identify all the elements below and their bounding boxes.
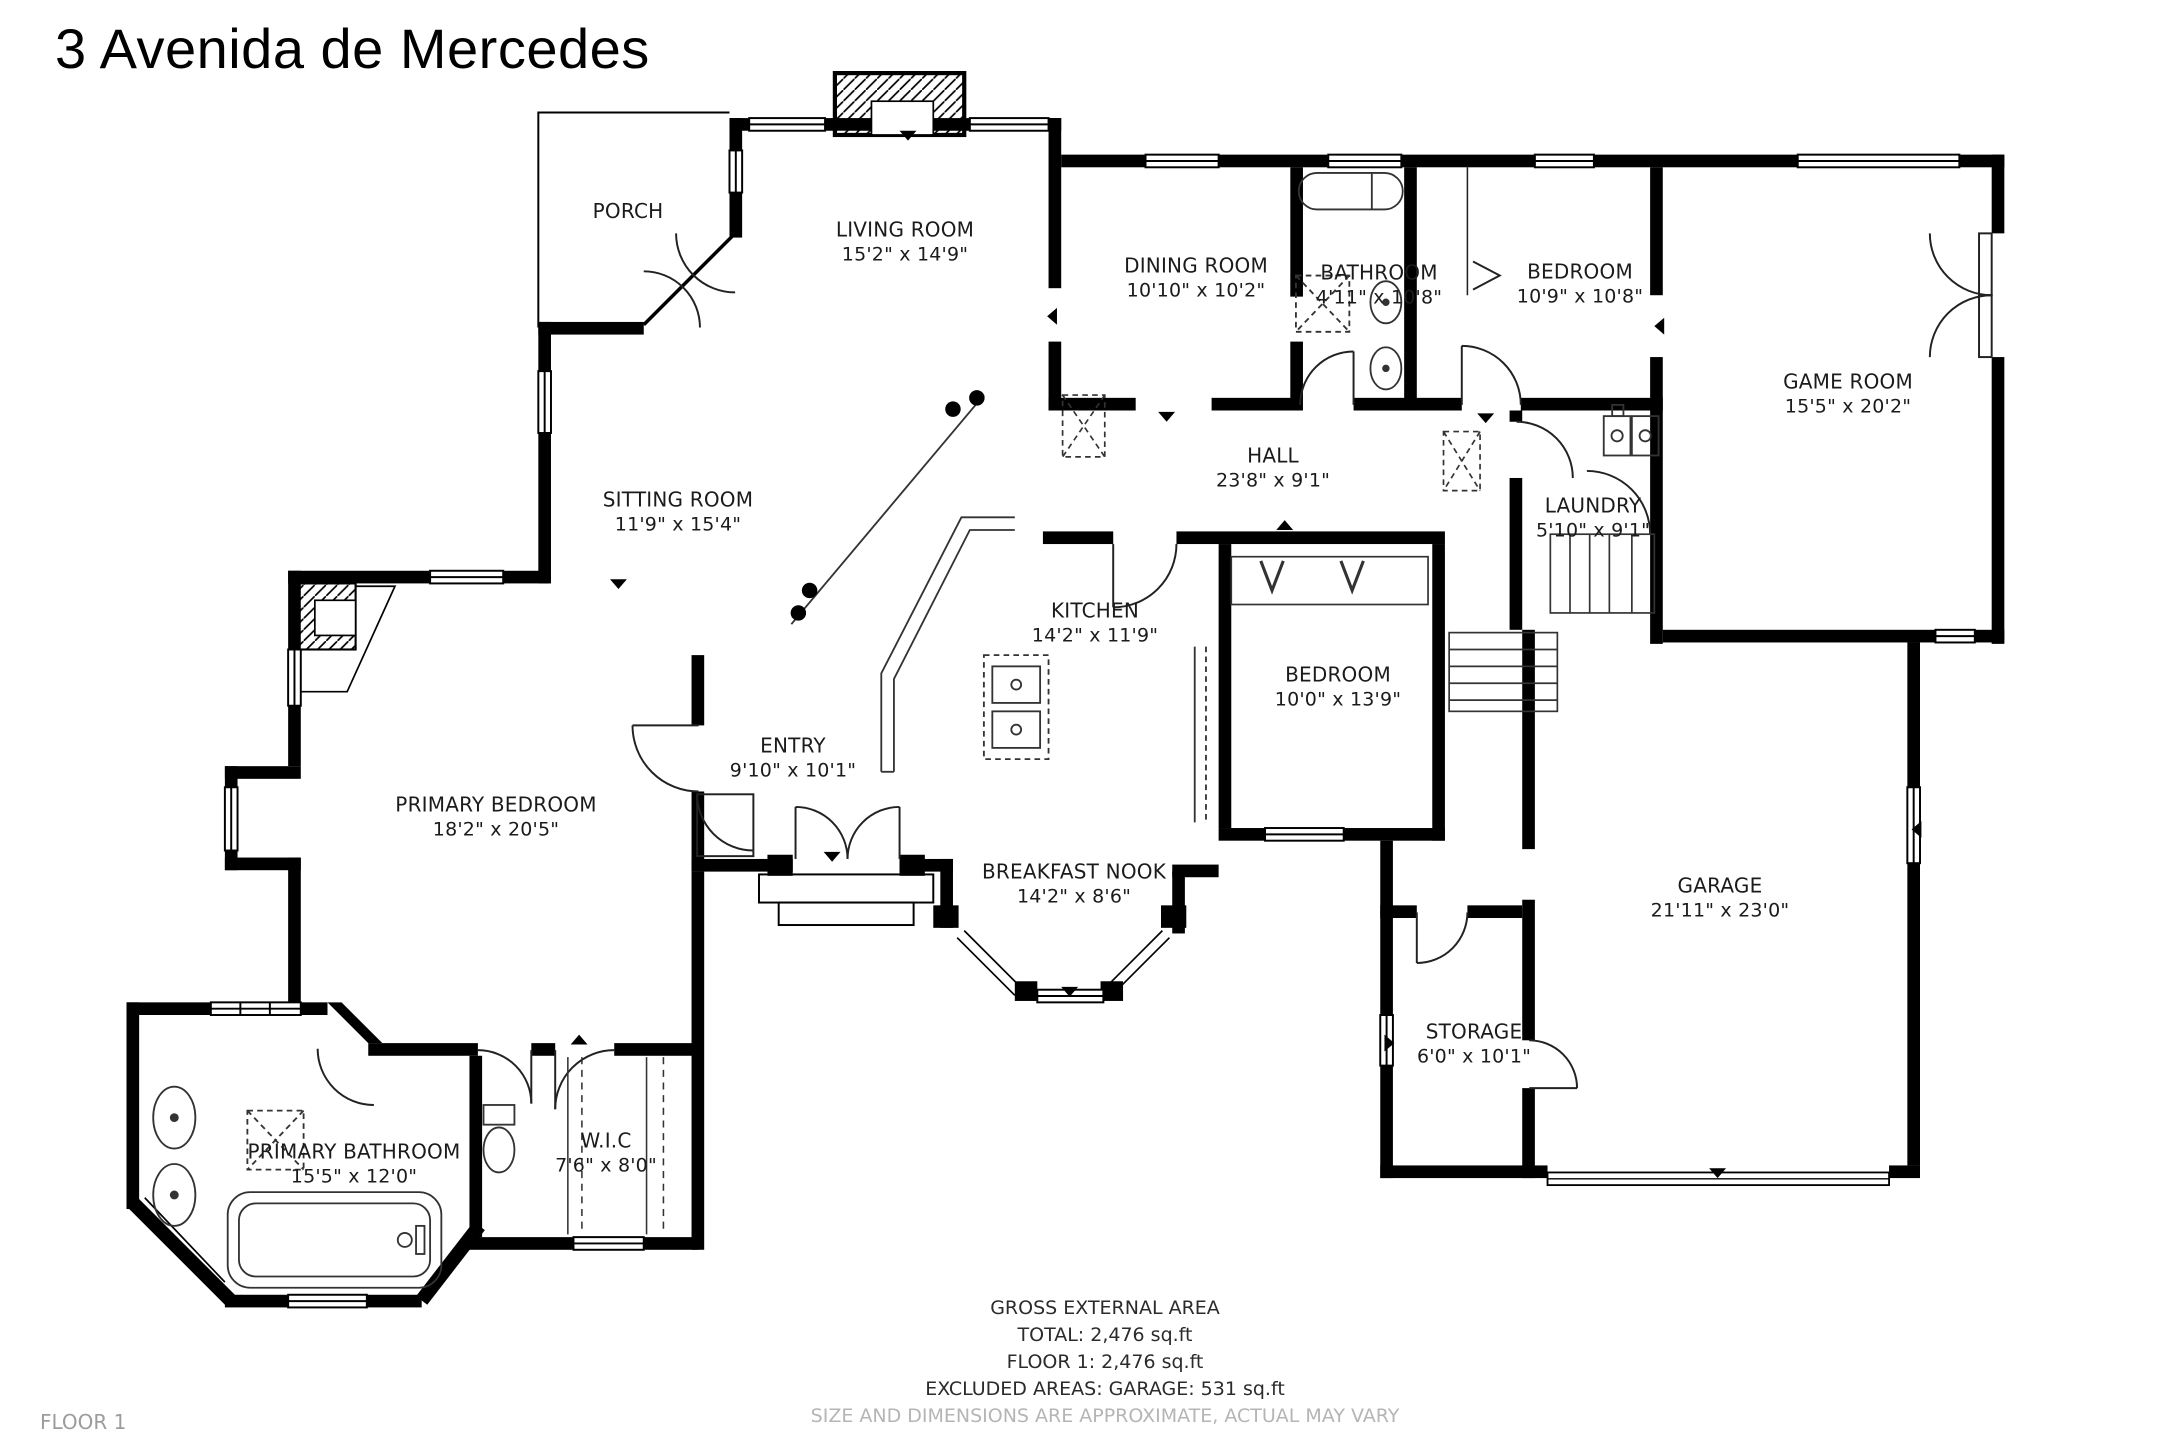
room-dims: 11'9" x 15'4" <box>603 513 753 538</box>
room-label-entry: ENTRY 9'10" x 10'1" <box>730 733 856 784</box>
chimney <box>835 73 964 135</box>
room-dims: 7'6" x 8'0" <box>555 1154 657 1179</box>
room-name: LAUNDRY <box>1536 493 1650 519</box>
room-name: PRIMARY BATHROOM <box>248 1139 461 1165</box>
excluded-areas: EXCLUDED AREAS: GARAGE: 531 sq.ft <box>811 1376 1400 1403</box>
room-label-kitchen: KITCHEN 14'2" x 11'9" <box>1032 598 1158 649</box>
room-label-porch: PORCH <box>593 198 664 224</box>
gross-area-heading: GROSS EXTERNAL AREA <box>811 1295 1400 1322</box>
walls <box>127 118 2005 1307</box>
room-dims: 9'10" x 10'1" <box>730 759 856 784</box>
open-plan-columns <box>791 390 985 624</box>
room-label-bedroom-top: BEDROOM 10'9" x 10'8" <box>1517 259 1643 310</box>
room-label-bedroom-mid: BEDROOM 10'0" x 13'9" <box>1275 662 1401 713</box>
room-dims: 15'5" x 20'2" <box>1783 395 1913 420</box>
room-dims: 15'5" x 12'0" <box>248 1165 461 1190</box>
room-label-storage: STORAGE 6'0" x 10'1" <box>1417 1019 1531 1070</box>
room-name: SITTING ROOM <box>603 487 753 513</box>
room-label-game-room: GAME ROOM 15'5" x 20'2" <box>1783 369 1913 420</box>
floorplan-page: 3 Avenida de Mercedes PORCH LIVING ROOM … <box>0 0 2173 1448</box>
windows <box>138 118 1975 1307</box>
room-name: GAME ROOM <box>1783 369 1913 395</box>
floor-label: FLOOR 1 <box>40 1410 126 1434</box>
room-name: PRIMARY BEDROOM <box>395 792 596 818</box>
room-label-garage: GARAGE 21'11" x 23'0" <box>1651 873 1790 924</box>
room-label-primary-bedroom: PRIMARY BEDROOM 18'2" x 20'5" <box>395 792 596 843</box>
room-dims: 23'8" x 9'1" <box>1216 469 1330 494</box>
room-name: DINING ROOM <box>1124 253 1268 279</box>
room-label-wic: W.I.C 7'6" x 8'0" <box>555 1128 657 1179</box>
disclaimer: SIZE AND DIMENSIONS ARE APPROXIMATE, ACT… <box>811 1403 1400 1430</box>
room-name: BEDROOM <box>1517 259 1643 285</box>
room-dims: 10'10" x 10'2" <box>1124 279 1268 304</box>
room-label-dining-room: DINING ROOM 10'10" x 10'2" <box>1124 253 1268 304</box>
room-dims: 10'9" x 10'8" <box>1517 285 1643 310</box>
room-dims: 10'0" x 13'9" <box>1275 688 1401 713</box>
room-label-primary-bathroom: PRIMARY BATHROOM 15'5" x 12'0" <box>248 1139 461 1190</box>
floorplan-drawing <box>0 0 2173 1448</box>
room-name: BEDROOM <box>1275 662 1401 688</box>
room-dims: 6'0" x 10'1" <box>1417 1045 1531 1070</box>
room-label-bathroom: BATHROOM 4'11" x 10'8" <box>1316 260 1442 311</box>
area-summary: GROSS EXTERNAL AREA TOTAL: 2,476 sq.ft F… <box>811 1295 1400 1430</box>
total-area: TOTAL: 2,476 sq.ft <box>811 1322 1400 1349</box>
floor1-area: FLOOR 1: 2,476 sq.ft <box>811 1349 1400 1376</box>
room-label-laundry: LAUNDRY 5'10" x 9'1" <box>1536 493 1650 544</box>
room-dims: 14'2" x 11'9" <box>1032 624 1158 649</box>
room-name: ENTRY <box>730 733 856 759</box>
room-name: W.I.C <box>555 1128 657 1154</box>
room-dims: 4'11" x 10'8" <box>1316 286 1442 311</box>
room-name: KITCHEN <box>1032 598 1158 624</box>
room-name: PORCH <box>593 198 664 224</box>
room-name: GARAGE <box>1651 873 1790 899</box>
room-dims: 5'10" x 9'1" <box>1536 519 1650 544</box>
room-name: LIVING ROOM <box>836 217 974 243</box>
room-name: BREAKFAST NOOK <box>982 859 1166 885</box>
room-label-living-room: LIVING ROOM 15'2" x 14'9" <box>836 217 974 268</box>
room-label-hall: HALL 23'8" x 9'1" <box>1216 443 1330 494</box>
room-dims: 14'2" x 8'6" <box>982 885 1166 910</box>
room-name: STORAGE <box>1417 1019 1531 1045</box>
page-title: 3 Avenida de Mercedes <box>55 16 650 81</box>
room-dims: 18'2" x 20'5" <box>395 818 596 843</box>
room-name: HALL <box>1216 443 1330 469</box>
room-label-sitting-room: SITTING ROOM 11'9" x 15'4" <box>603 487 753 538</box>
entry-stoop <box>759 874 933 925</box>
wardrobe <box>1231 557 1428 605</box>
kitchen-fixtures <box>881 517 1206 822</box>
room-dims: 21'11" x 23'0" <box>1651 899 1790 924</box>
fireplace <box>299 583 395 691</box>
room-label-breakfast-nook: BREAKFAST NOOK 14'2" x 8'6" <box>982 859 1166 910</box>
room-name: BATHROOM <box>1316 260 1442 286</box>
room-dims: 15'2" x 14'9" <box>836 243 974 268</box>
stairs <box>1449 534 1654 711</box>
